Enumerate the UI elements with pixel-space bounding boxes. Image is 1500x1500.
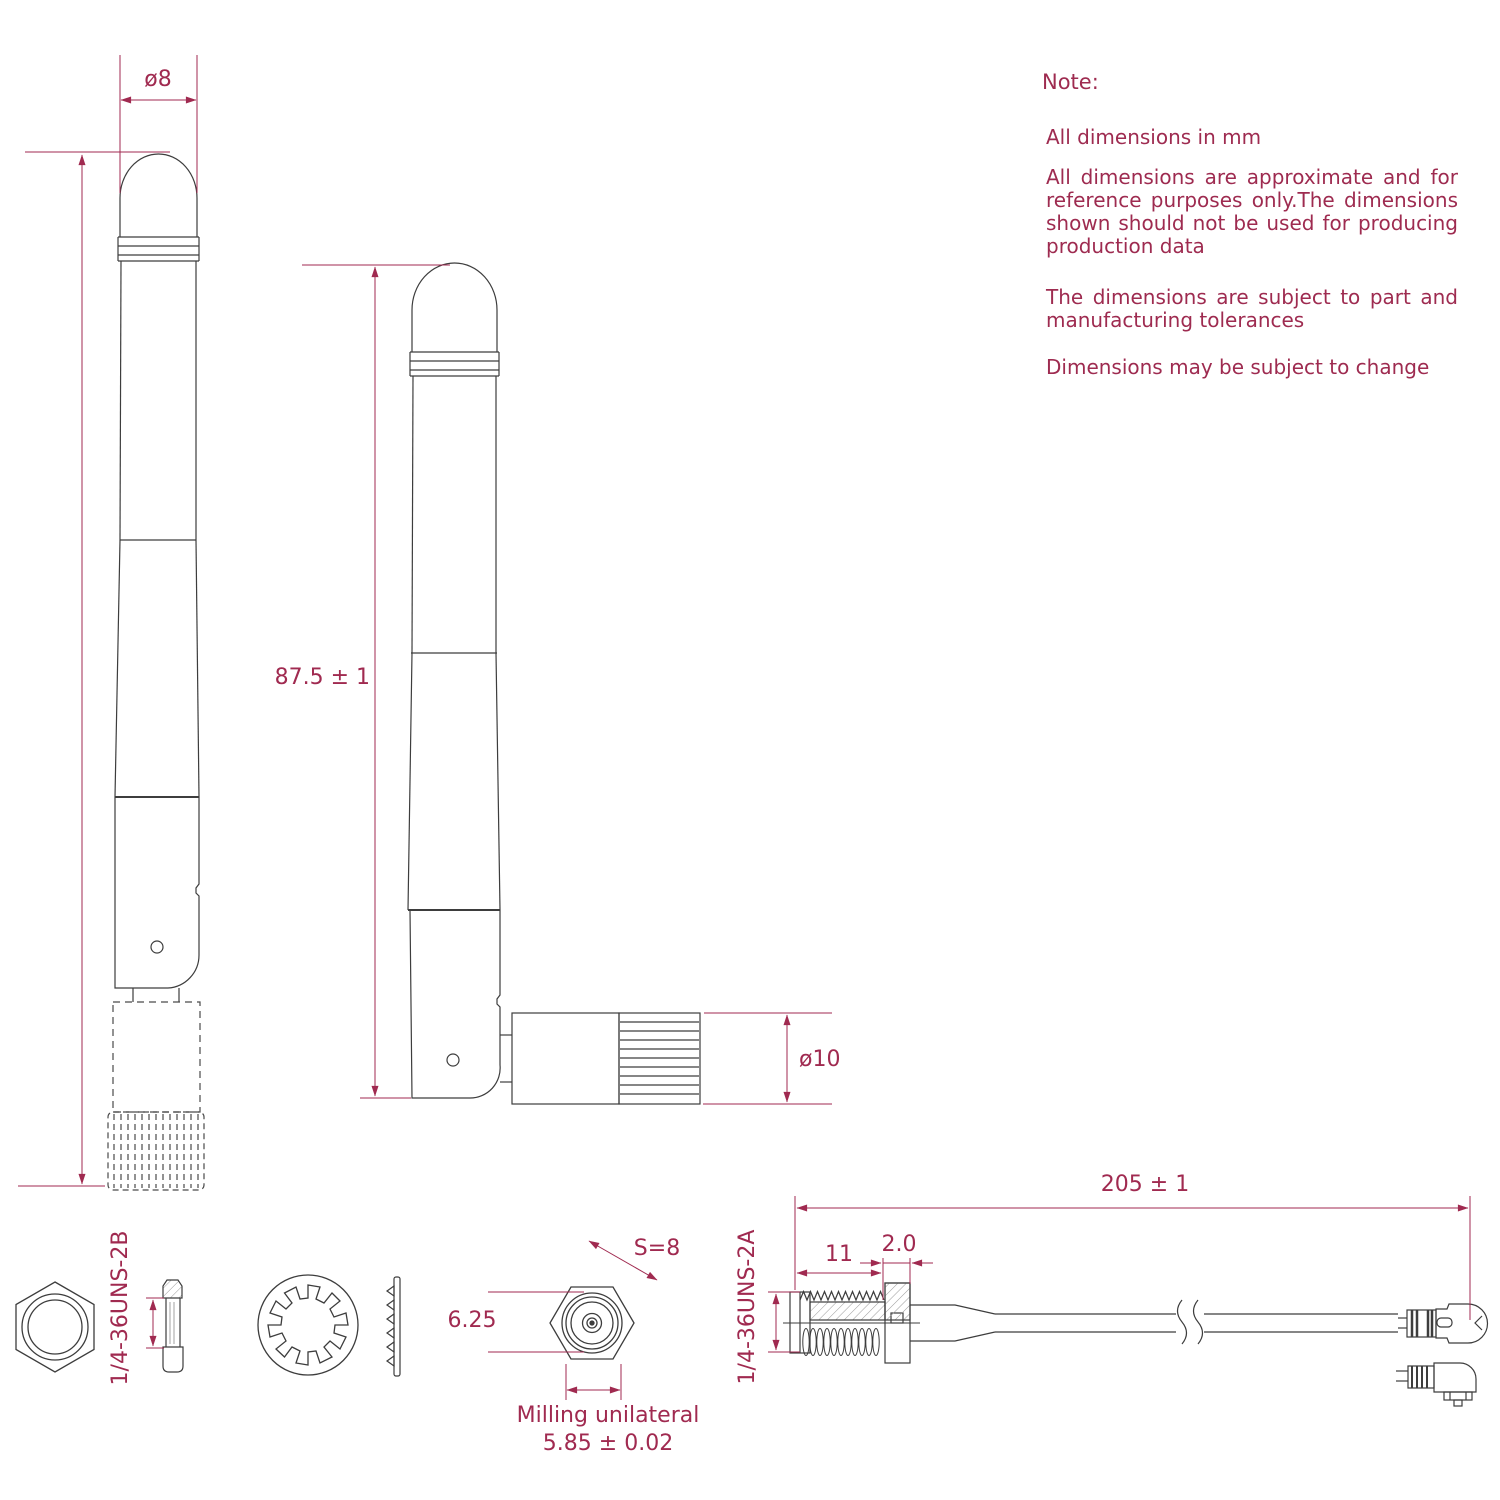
- note-item: All dimensions are approximate and for r…: [1046, 166, 1458, 258]
- cable-assembly-drawing: [783, 1283, 1488, 1406]
- antenna2-hinge-right: [470, 910, 500, 1098]
- antenna2-hinge-left: [410, 910, 470, 1098]
- antenna2-pivot-hole: [447, 1054, 459, 1066]
- dim-milling-note: Milling unilateral: [517, 1403, 700, 1428]
- antenna1-grooves: [118, 237, 199, 261]
- dim-connector-face-diameter: 6.25: [448, 1308, 497, 1333]
- ufl-plug-top-view: [1398, 1304, 1488, 1343]
- antenna1-pivot-hole: [151, 941, 163, 953]
- bent-antenna-drawing: [408, 263, 700, 1104]
- technical-drawing-page: { "notes": { "heading": "Note:", "items"…: [0, 0, 1500, 1500]
- dim-bulkhead-step: 2.0: [882, 1232, 917, 1257]
- dim-tip-diameter: ø8: [144, 67, 171, 92]
- dim-nut-thread-spec: 1/4-36UNS-2B: [108, 1231, 133, 1386]
- note-item: All dimensions in mm: [1046, 126, 1458, 149]
- antenna1-sma-body-hidden: [113, 1002, 200, 1112]
- lock-washer-face-view: [258, 1275, 358, 1375]
- nut-side-view: [163, 1280, 183, 1372]
- cable-break-symbol: [1178, 1300, 1187, 1344]
- sma-face-view: [550, 1287, 634, 1359]
- heatshrink-taper: [910, 1305, 995, 1341]
- dim-jack-thread-spec: 1/4-36UNS-2A: [735, 1230, 760, 1385]
- antenna2-dome: [412, 263, 497, 352]
- lock-washer-side-view: [387, 1277, 400, 1376]
- antenna1-hinge-left: [115, 797, 168, 988]
- hex-nut-face-view: [16, 1282, 94, 1372]
- dim-milling-width: 5.85 ± 0.02: [543, 1431, 673, 1456]
- antenna2-sma-body: [512, 1013, 619, 1104]
- ufl-plug-side-view: [1396, 1363, 1476, 1406]
- dim-thread-length: 11: [825, 1242, 853, 1267]
- antenna1-hinge-right: [168, 797, 199, 988]
- dim-hex-across-flats: S=8: [634, 1236, 680, 1261]
- notes-heading: Note:: [1042, 70, 1099, 94]
- dim-antenna-length: 87.5 ± 1: [275, 665, 370, 690]
- sma-face-dims: [488, 1241, 657, 1400]
- note-item: The dimensions are subject to part and m…: [1046, 286, 1458, 332]
- antenna2-dimensions: [302, 265, 832, 1104]
- straight-antenna-drawing: [108, 154, 204, 1190]
- jack-thread-profile: [800, 1292, 884, 1301]
- jack-body-section: [810, 1302, 885, 1320]
- antenna1-dimensions: [18, 55, 197, 1186]
- antenna1-knurl-hidden: [108, 1112, 204, 1190]
- cable-assembly-dims: [768, 1196, 1470, 1352]
- jack-external-thread: [803, 1329, 879, 1356]
- dim-cable-length: 205 ± 1: [1101, 1172, 1189, 1197]
- dim-connector-diameter: ø10: [799, 1047, 840, 1072]
- nut-thread-dim: [146, 1298, 164, 1348]
- antenna2-grooves: [410, 352, 499, 376]
- coax-cable: [995, 1300, 1398, 1344]
- antenna2-knurl: [619, 1013, 700, 1104]
- note-item: Dimensions may be subject to change: [1046, 356, 1458, 379]
- antenna1-dome: [120, 154, 197, 237]
